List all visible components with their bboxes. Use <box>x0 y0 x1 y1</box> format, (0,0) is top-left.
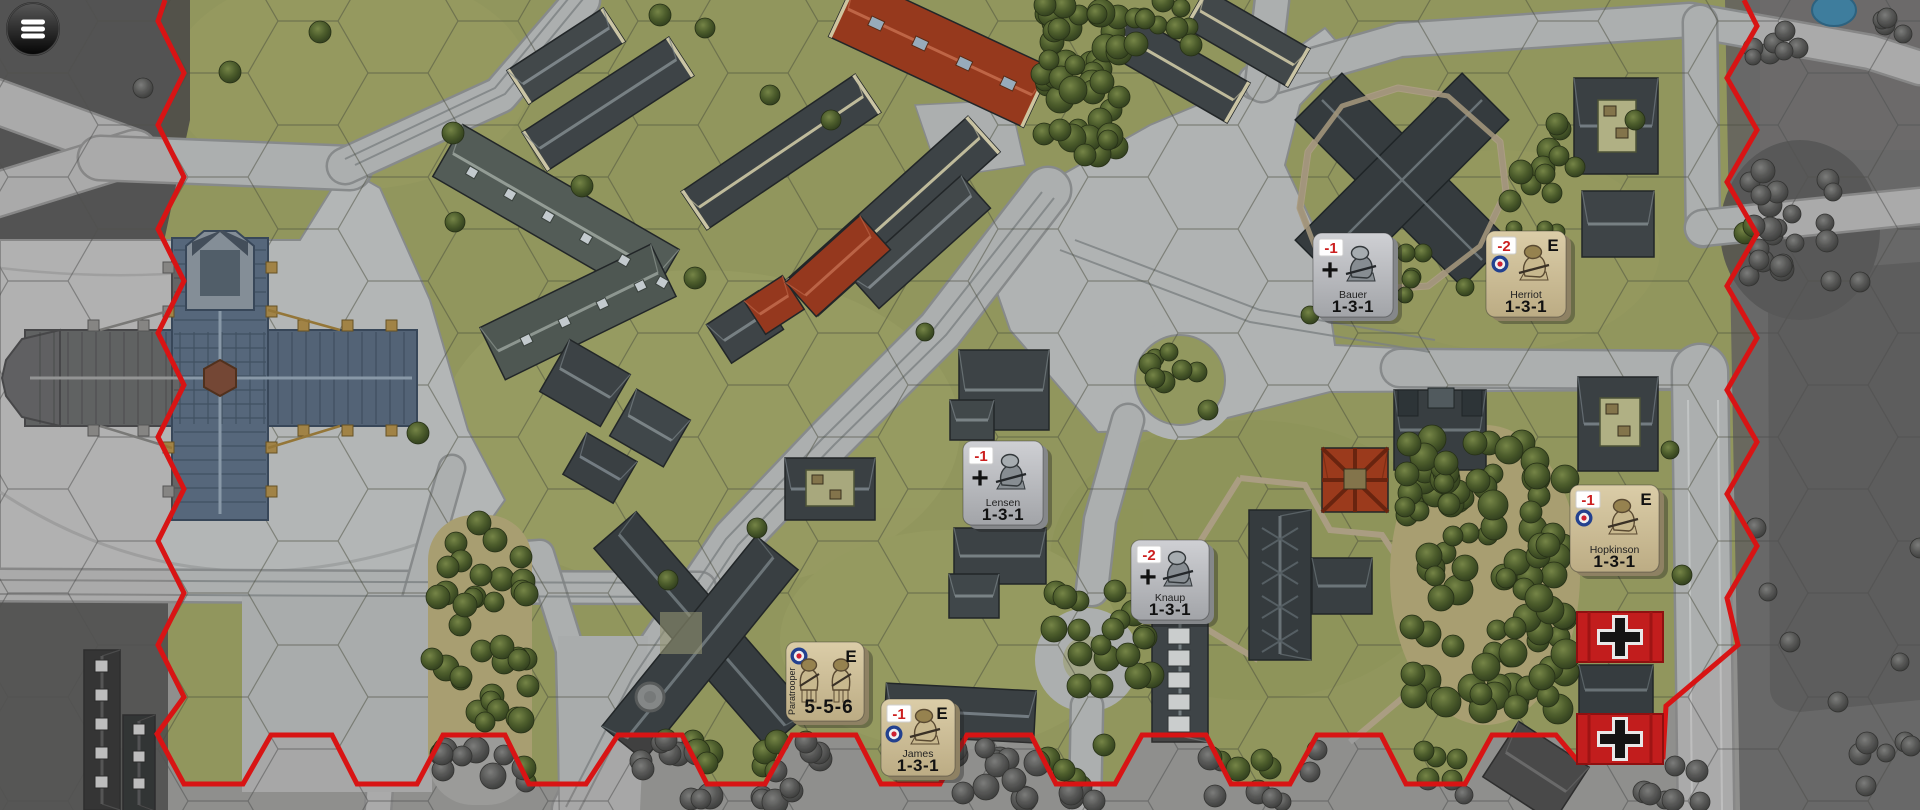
svg-text:E: E <box>936 704 947 723</box>
svg-text:5-5-6: 5-5-6 <box>804 697 853 718</box>
svg-text:1-3-1: 1-3-1 <box>897 756 939 775</box>
svg-text:1-3-1: 1-3-1 <box>1332 297 1374 316</box>
svg-text:E: E <box>1547 236 1558 255</box>
svg-text:-2: -2 <box>1497 238 1510 255</box>
svg-text:-1: -1 <box>1581 492 1594 509</box>
svg-text:-1: -1 <box>892 706 905 723</box>
svg-text:1-3-1: 1-3-1 <box>1505 297 1547 316</box>
svg-text:1-3-1: 1-3-1 <box>1149 600 1191 619</box>
svg-text:+: + <box>971 462 989 495</box>
svg-text:Paratrooper: Paratrooper <box>787 667 797 715</box>
svg-text:1-3-1: 1-3-1 <box>982 505 1024 524</box>
svg-text:E: E <box>1640 490 1651 509</box>
svg-text:+: + <box>1321 254 1339 287</box>
svg-text:E: E <box>845 647 856 666</box>
svg-text:1-3-1: 1-3-1 <box>1593 552 1635 571</box>
svg-text:+: + <box>1139 561 1157 594</box>
